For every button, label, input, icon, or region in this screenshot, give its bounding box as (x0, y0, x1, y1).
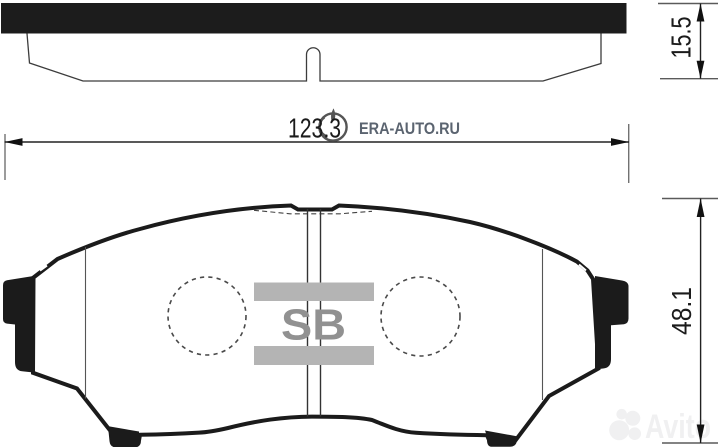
svg-text:SB: SB (281, 301, 346, 350)
svg-text:ERA-AUTO.RU: ERA-AUTO.RU (359, 119, 460, 138)
svg-text:123.3: 123.3 (288, 113, 341, 144)
svg-text:15.5: 15.5 (666, 17, 697, 59)
svg-text:48.1: 48.1 (666, 287, 697, 335)
